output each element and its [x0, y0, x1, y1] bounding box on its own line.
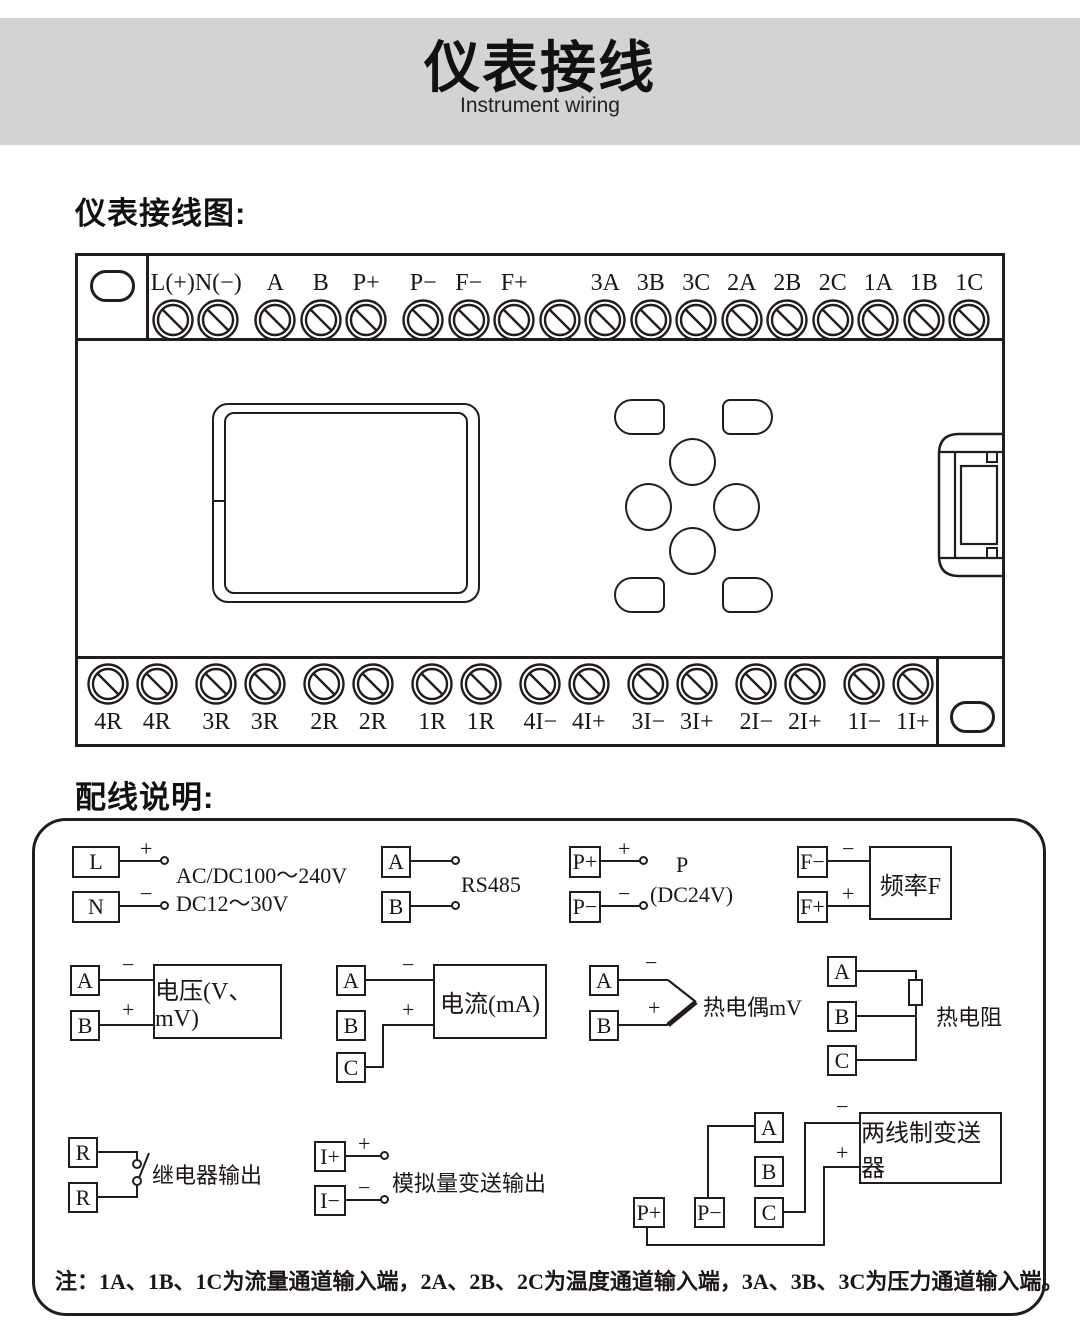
key-bottom-left-button [614, 577, 665, 613]
terminal-box-a: A [70, 965, 100, 996]
terminal-label: 3I− [631, 709, 665, 736]
polarity-label: + [648, 995, 660, 1021]
wire-segment [646, 1244, 825, 1246]
resistor-symbol [908, 979, 923, 1006]
wire-segment [857, 1059, 917, 1061]
terminal-p-minus: P− [401, 264, 447, 341]
terminal-box-a: A [827, 956, 857, 987]
terminal-box-f-plus: F+ [797, 891, 828, 923]
screw-terminal-icon [766, 299, 808, 341]
polarity-label: + [140, 836, 152, 862]
terminal-box-i-plus: I+ [314, 1141, 346, 1172]
terminal-unlabeled [537, 264, 583, 341]
polarity-label: − [836, 1094, 848, 1120]
key-bottom-right-button [722, 577, 773, 613]
wire-segment [366, 979, 433, 981]
p-supply-voltage: (DC24V) [650, 882, 733, 908]
terminal-label: 1I− [847, 709, 881, 736]
polarity-label: + [836, 1140, 848, 1166]
screw-terminal-icon [892, 663, 934, 705]
terminal-box-p-minus: P− [694, 1197, 725, 1228]
terminal-label: 1A [864, 264, 893, 297]
screw-terminal-icon [195, 663, 237, 705]
screw-terminal-icon [568, 663, 610, 705]
terminal-1r-b: 1R [457, 663, 506, 736]
terminal-box-c: C [336, 1052, 366, 1083]
wire-segment [411, 860, 453, 862]
key-top-right-button [722, 399, 773, 435]
terminal-box-p-plus: P+ [633, 1197, 665, 1228]
screw-terminal-icon [721, 299, 763, 341]
bottom-terminal-strip: 4R 4R 3R 3R 2R 2R 1R 1R 4I− 4I+ 3I− 3I+ … [84, 663, 937, 736]
terminal-label: 1R [418, 709, 446, 736]
polarity-label: − [618, 881, 630, 907]
key-down-button [669, 527, 716, 575]
screw-terminal-icon [244, 663, 286, 705]
terminal-box-b: B [827, 1001, 857, 1032]
screw-terminal-icon [843, 663, 885, 705]
screw-terminal-icon [345, 299, 387, 341]
terminal-box-r2: R [68, 1182, 98, 1213]
terminal-label: 4R [94, 709, 122, 736]
wire-segment [857, 970, 917, 972]
screw-terminal-icon [584, 299, 626, 341]
wiring-note: 注：1A、1B、1C为流量通道输入端，2A、2B、2C为温度通道输入端，3A、3… [55, 1264, 1045, 1296]
terminal-3r-b: 3R [241, 663, 290, 736]
transmitter-device-box: 两线制变送器 [859, 1112, 1002, 1184]
polarity-label: − [842, 836, 854, 862]
thermocouple-label: 热电偶mV [703, 990, 802, 1022]
mounting-slot-top-left [90, 270, 135, 302]
terminal-node [380, 1195, 389, 1204]
terminal-box-r1: R [68, 1137, 98, 1168]
display-side-tick [212, 500, 224, 502]
terminal-label: 2B [773, 264, 801, 297]
terminal-label: 2I− [739, 709, 773, 736]
screw-terminal-icon [352, 663, 394, 705]
key-up-button [669, 438, 716, 486]
diagram-heading: 仪表接线图: [75, 188, 246, 233]
terminal-1i-minus: 1I− [840, 663, 889, 736]
bottom-strip-divider-line [75, 656, 1005, 659]
terminal-2a: 2A [719, 264, 765, 341]
wire-segment [857, 1015, 917, 1017]
terminal-label: 4I+ [572, 709, 606, 736]
terminal-label: A [267, 264, 284, 297]
terminal-box-f-minus: F− [797, 846, 828, 878]
terminal-label: 1C [955, 264, 983, 297]
terminal-label: 2R [310, 709, 338, 736]
screw-terminal-icon [402, 299, 444, 341]
screw-terminal-icon [300, 299, 342, 341]
screw-terminal-icon [539, 299, 581, 341]
polarity-label: − [358, 1175, 370, 1201]
screw-terminal-icon [903, 299, 945, 341]
terminal-box-a: A [754, 1112, 784, 1143]
terminal-3b: 3B [628, 264, 674, 341]
key-left-button [625, 483, 672, 531]
page-title: 仪表接线 [0, 39, 1080, 97]
polarity-label: + [358, 1131, 370, 1157]
top-terminal-strip: L(+) N(−) A B P+ P− F− F+ 3A 3B 3C 2A 2B… [150, 264, 992, 341]
terminal-4i-plus: 4I+ [565, 663, 614, 736]
terminal-2b: 2B [765, 264, 811, 341]
terminal-box-n: N [72, 891, 120, 923]
terminal-label: 4R [143, 709, 171, 736]
terminal-label: 2C [819, 264, 847, 297]
screw-terminal-icon [460, 663, 502, 705]
wire-segment [411, 905, 453, 907]
terminal-2c: 2C [810, 264, 856, 341]
terminal-label: 3A [591, 264, 620, 297]
terminal-3a: 3A [583, 264, 629, 341]
terminal-label: B [313, 264, 329, 297]
p-supply-name: P [676, 852, 688, 878]
wire-segment [382, 1024, 433, 1026]
mounting-slot-bottom-right [950, 701, 995, 733]
wire-segment [382, 1024, 384, 1068]
display-window-inner [224, 412, 468, 594]
terminal-box-a: A [381, 846, 411, 878]
voltage-device-box: 电压(V、mV) [153, 964, 282, 1039]
key-top-left-button [614, 399, 665, 435]
polarity-label: + [122, 997, 134, 1023]
terminal-a: A [253, 264, 299, 341]
terminal-f-minus: F− [446, 264, 492, 341]
terminal-box-a: A [589, 965, 619, 996]
terminal-label: P− [410, 264, 437, 297]
screw-terminal-icon [676, 663, 718, 705]
terminal-box-b: B [754, 1156, 784, 1187]
analog-output-label: 模拟量变送输出 [392, 1166, 546, 1198]
page-subtitle: Instrument wiring [0, 95, 1080, 117]
terminal-n-minus: N(−) [196, 264, 242, 341]
terminal-p-plus: P+ [344, 264, 390, 341]
terminal-node [160, 901, 169, 910]
current-device-box: 电流(mA) [433, 964, 547, 1039]
terminal-label: 2R [359, 709, 387, 736]
terminal-label: 1B [910, 264, 938, 297]
screw-terminal-icon [87, 663, 129, 705]
polarity-label: − [122, 952, 134, 978]
side-connector-icon [933, 430, 1005, 580]
terminal-node [639, 901, 648, 910]
wire-segment [100, 1024, 153, 1026]
wire-segment [707, 1126, 709, 1197]
screw-terminal-icon [411, 663, 453, 705]
polarity-label: − [645, 950, 657, 976]
screw-terminal-icon [254, 299, 296, 341]
polarity-label: + [618, 836, 630, 862]
wire-segment [619, 979, 668, 981]
frequency-device-box: 频率F [869, 846, 952, 920]
terminal-label: N(−) [195, 264, 242, 297]
page: 仪表接线 Instrument wiring 仪表接线图: L(+) N(−) … [0, 0, 1080, 1324]
terminal-3r-a: 3R [192, 663, 241, 736]
terminal-1r-a: 1R [408, 663, 457, 736]
wire-segment [619, 1024, 668, 1026]
rtd-label: 热电阻 [936, 1000, 1002, 1032]
terminal-label: P+ [353, 264, 380, 297]
terminal-label: 1I+ [896, 709, 930, 736]
terminal-1b: 1B [901, 264, 947, 341]
terminal-node [160, 856, 169, 865]
terminal-label: 3I+ [680, 709, 714, 736]
screw-terminal-icon [630, 299, 672, 341]
terminal-4r-a: 4R [84, 663, 133, 736]
polarity-label: − [402, 952, 414, 978]
wire-segment [98, 1196, 138, 1198]
screw-terminal-icon [448, 299, 490, 341]
wire-segment [823, 1166, 825, 1246]
terminal-box-b: B [381, 891, 411, 923]
relay-label: 继电器输出 [152, 1158, 262, 1190]
wire-segment [804, 1123, 806, 1213]
terminal-node [380, 1151, 389, 1160]
wire-segment [784, 1211, 806, 1213]
wiring-heading: 配线说明: [75, 772, 214, 817]
terminal-2i-plus: 2I+ [781, 663, 830, 736]
terminal-label: 1R [467, 709, 495, 736]
terminal-2r-a: 2R [300, 663, 349, 736]
terminal-label: 4I− [523, 709, 557, 736]
terminal-label: 2A [727, 264, 756, 297]
terminal-label: 3R [202, 709, 230, 736]
terminal-2i-minus: 2I− [732, 663, 781, 736]
screw-terminal-icon [136, 663, 178, 705]
terminal-box-b: B [589, 1010, 619, 1041]
screw-terminal-icon [784, 663, 826, 705]
screw-terminal-icon [197, 299, 239, 341]
terminal-node [451, 856, 460, 865]
screw-terminal-icon [519, 663, 561, 705]
power-range-line2: DC12～30V [176, 886, 288, 918]
terminal-label: F− [455, 264, 482, 297]
key-right-button [713, 483, 760, 531]
terminal-1a: 1A [856, 264, 902, 341]
screw-terminal-icon [735, 663, 777, 705]
terminal-box-c: C [754, 1197, 784, 1228]
screw-terminal-icon [493, 299, 535, 341]
terminal-node [451, 901, 460, 910]
terminal-f-plus: F+ [492, 264, 538, 341]
wire-segment [707, 1125, 754, 1127]
terminal-box-l: L [72, 846, 120, 878]
polarity-label: + [402, 997, 414, 1023]
screw-terminal-icon [152, 299, 194, 341]
screw-terminal-icon [948, 299, 990, 341]
terminal-label: 3B [637, 264, 665, 297]
terminal-box-p-plus: P+ [569, 846, 601, 878]
terminal-3i-plus: 3I+ [673, 663, 722, 736]
terminal-l-plus: L(+) [150, 264, 196, 341]
terminal-box-p-minus: P− [569, 891, 601, 923]
terminal-3c: 3C [674, 264, 720, 341]
rs485-label: RS485 [461, 872, 521, 898]
terminal-box-a: A [336, 965, 366, 996]
wire-segment [823, 1166, 859, 1168]
polarity-label: + [842, 881, 854, 907]
terminal-label: 3C [682, 264, 710, 297]
screw-terminal-icon [303, 663, 345, 705]
screw-terminal-icon [857, 299, 899, 341]
wire-segment [804, 1122, 859, 1124]
terminal-1c: 1C [947, 264, 993, 341]
terminal-2r-b: 2R [349, 663, 398, 736]
polarity-label: − [140, 881, 152, 907]
terminal-box-b: B [336, 1010, 366, 1041]
terminal-1i-plus: 1I+ [889, 663, 938, 736]
screw-terminal-icon [627, 663, 669, 705]
terminal-label: L(+) [151, 264, 195, 297]
wire-segment [100, 979, 153, 981]
terminal-4i-minus: 4I− [516, 663, 565, 736]
screw-terminal-icon [812, 299, 854, 341]
terminal-label: 2I+ [788, 709, 822, 736]
terminal-b: B [298, 264, 344, 341]
terminal-label: F+ [501, 264, 528, 297]
terminal-label: 3R [251, 709, 279, 736]
terminal-3i-minus: 3I− [624, 663, 673, 736]
screw-terminal-icon [675, 299, 717, 341]
terminal-box-c: C [827, 1045, 857, 1076]
top-left-section-divider [146, 253, 149, 341]
thermocouple-junction-icon [666, 972, 702, 1032]
terminal-box-b: B [70, 1010, 100, 1041]
page-header: 仪表接线 Instrument wiring [0, 18, 1080, 145]
terminal-4r-b: 4R [133, 663, 182, 736]
terminal-node [639, 856, 648, 865]
terminal-box-i-minus: I− [314, 1185, 346, 1216]
